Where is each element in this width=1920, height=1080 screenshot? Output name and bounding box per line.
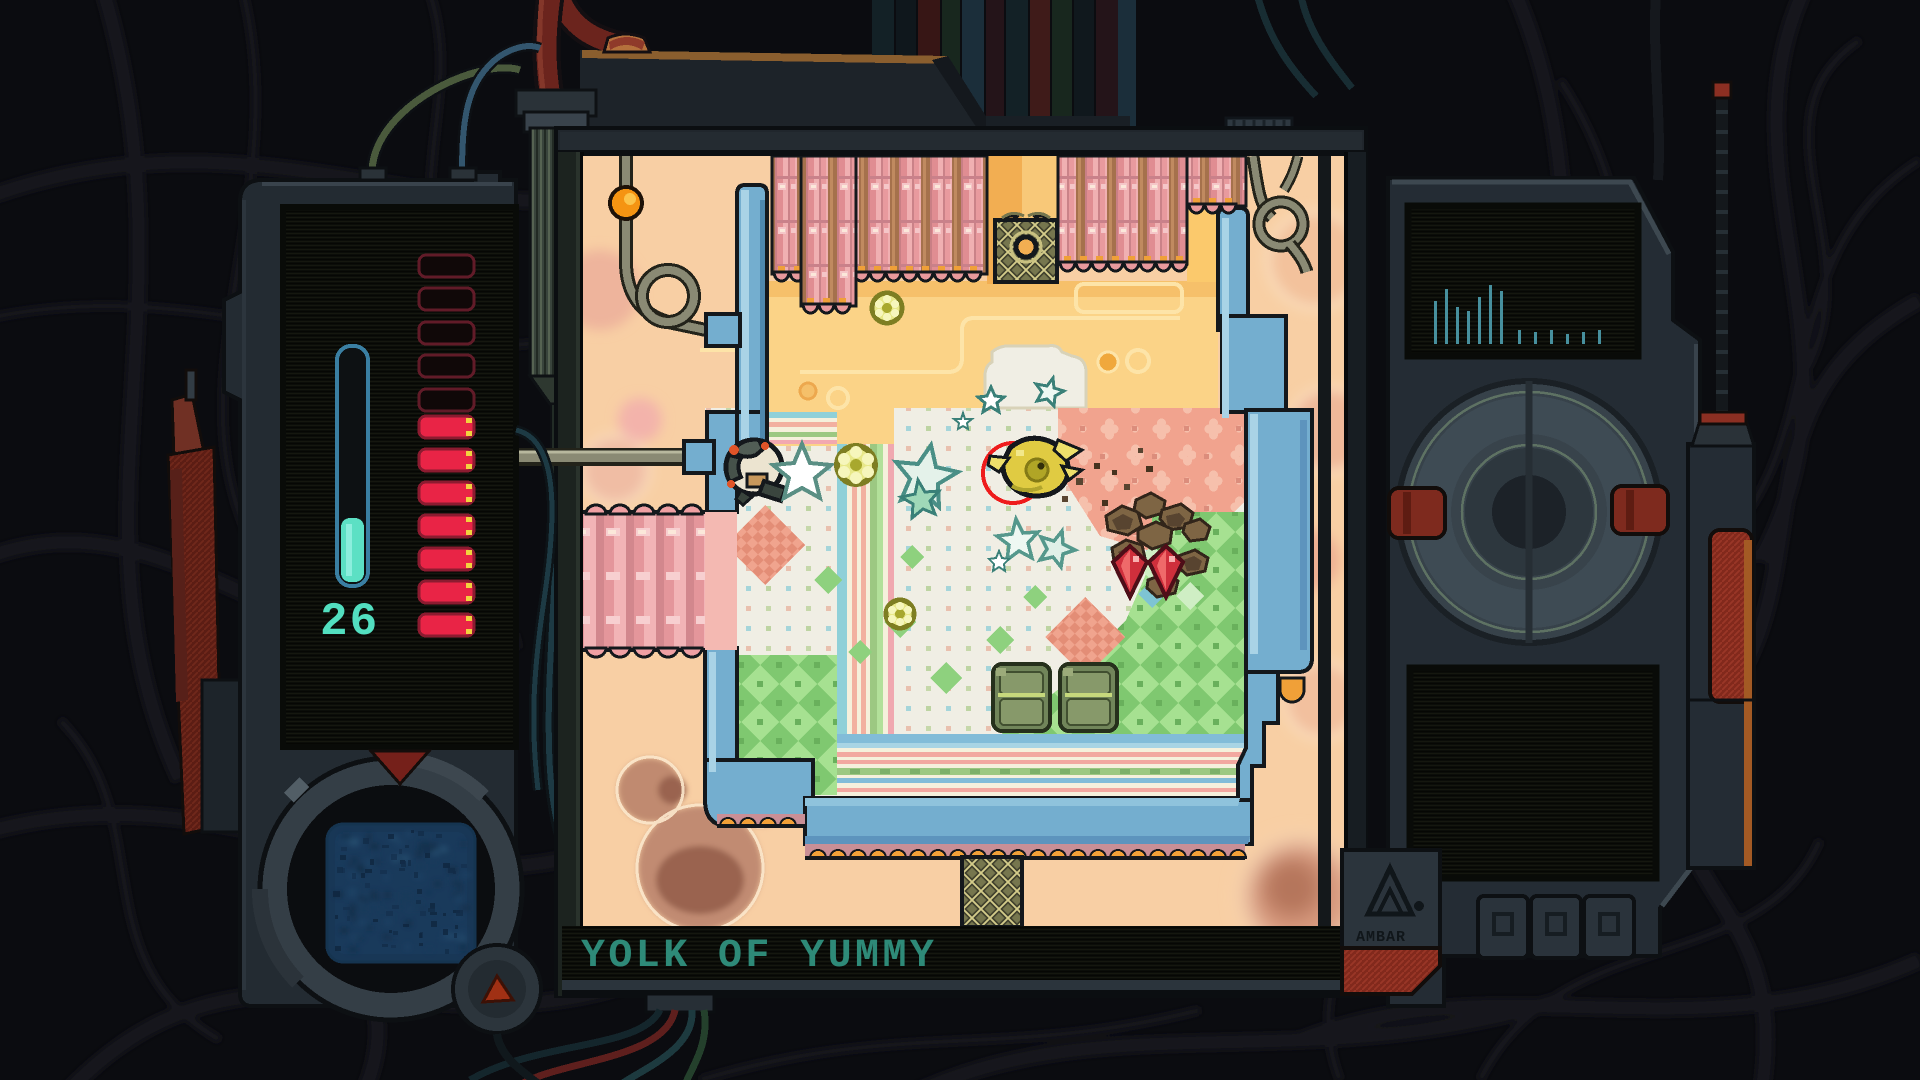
svg-text:YOLK OF YUMMY: YOLK OF YUMMY — [581, 934, 937, 979]
svg-text:AMBAR: AMBAR — [1356, 929, 1406, 946]
svg-text:26: 26 — [320, 596, 379, 648]
